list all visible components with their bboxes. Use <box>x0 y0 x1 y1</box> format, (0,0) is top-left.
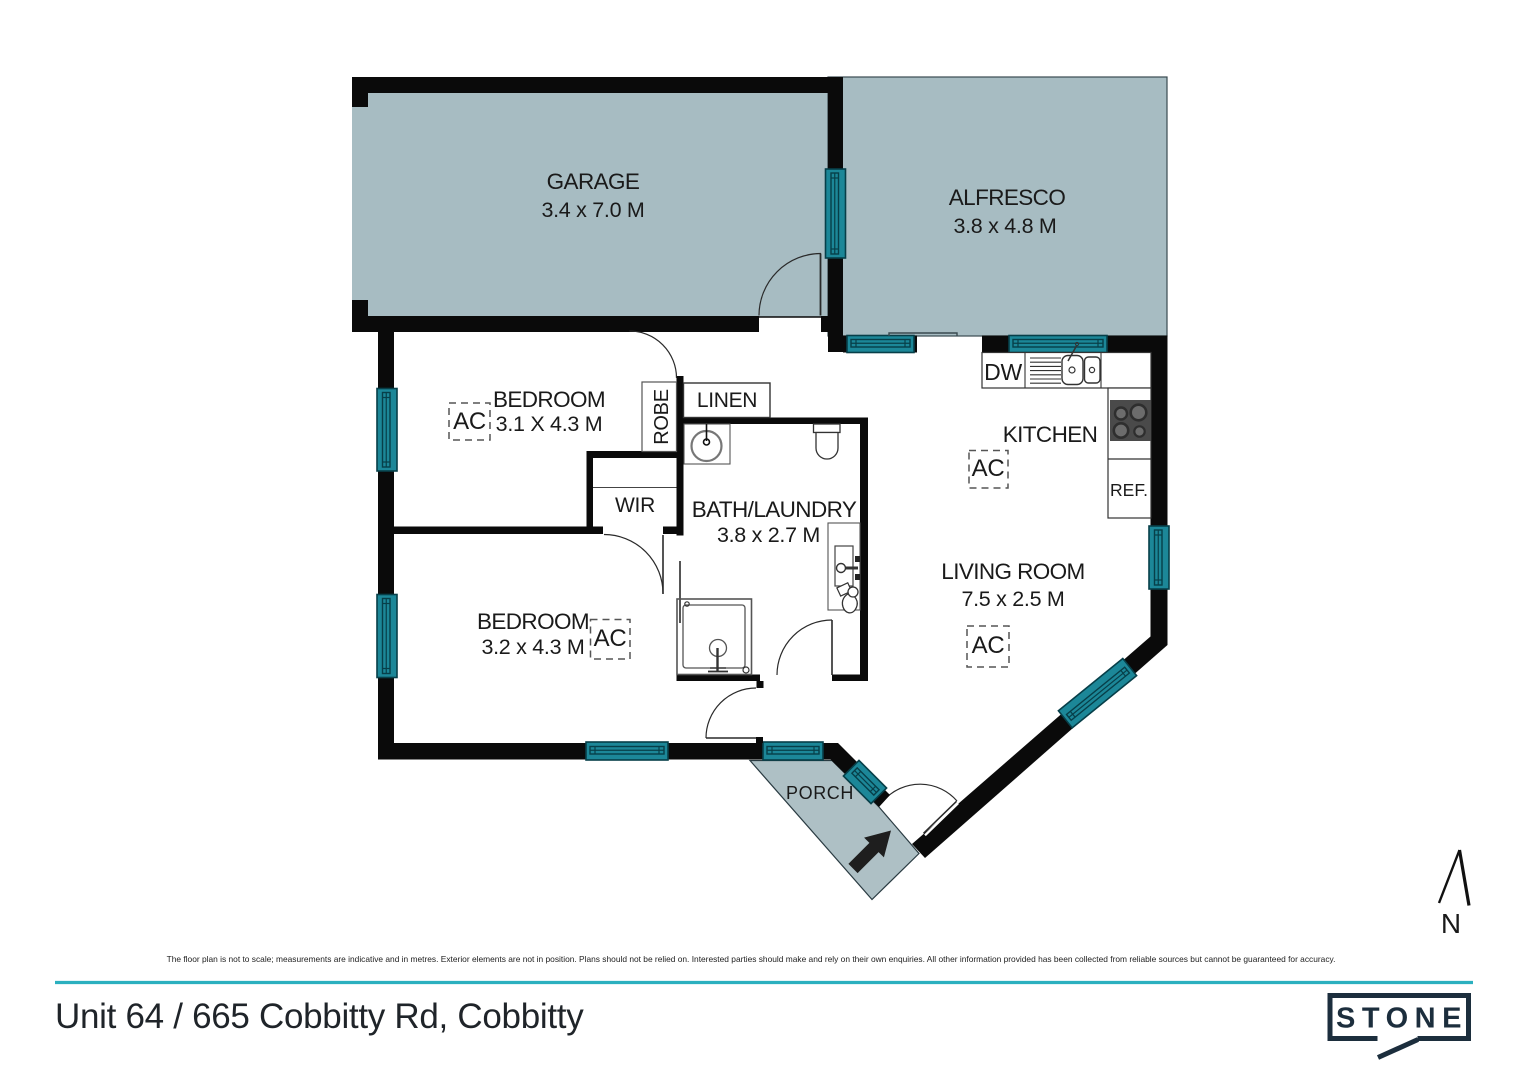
svg-text:3.4 x 7.0 M: 3.4 x 7.0 M <box>541 198 644 222</box>
svg-text:AC: AC <box>594 625 627 652</box>
svg-text:LINEN: LINEN <box>697 389 757 412</box>
svg-text:3.2 x 4.3 M: 3.2 x 4.3 M <box>481 635 584 659</box>
svg-text:BEDROOM: BEDROOM <box>477 609 589 634</box>
svg-text:ROBE: ROBE <box>651 389 673 444</box>
svg-text:LIVING ROOM: LIVING ROOM <box>941 559 1084 584</box>
svg-text:BATH/LAUNDRY: BATH/LAUNDRY <box>692 497 857 522</box>
svg-text:KITCHEN: KITCHEN <box>1003 422 1098 447</box>
svg-text:Unit 64 / 665 Cobbitty Rd, Cob: Unit 64 / 665 Cobbitty Rd, Cobbitty <box>55 997 584 1036</box>
svg-text:AC: AC <box>972 632 1005 659</box>
svg-text:WIR: WIR <box>615 494 655 517</box>
svg-text:3.1 X 4.3 M: 3.1 X 4.3 M <box>496 412 603 436</box>
svg-text:GARAGE: GARAGE <box>547 169 640 194</box>
svg-text:STONE: STONE <box>1336 1003 1468 1035</box>
svg-text:N: N <box>1441 908 1461 939</box>
svg-text:AC: AC <box>453 408 486 435</box>
svg-text:DW: DW <box>984 359 1022 385</box>
svg-text:PORCH: PORCH <box>786 783 854 803</box>
svg-text:AC: AC <box>972 455 1005 482</box>
svg-text:The floor plan is not to scale: The floor plan is not to scale; measurem… <box>167 954 1336 964</box>
svg-text:ALFRESCO: ALFRESCO <box>949 185 1066 210</box>
svg-text:BEDROOM: BEDROOM <box>493 387 605 412</box>
svg-text:3.8 x 4.8 M: 3.8 x 4.8 M <box>953 214 1056 238</box>
svg-text:7.5 x 2.5 M: 7.5 x 2.5 M <box>961 587 1064 611</box>
svg-text:REF.: REF. <box>1110 480 1148 500</box>
svg-text:3.8 x 2.7 M: 3.8 x 2.7 M <box>717 523 820 547</box>
